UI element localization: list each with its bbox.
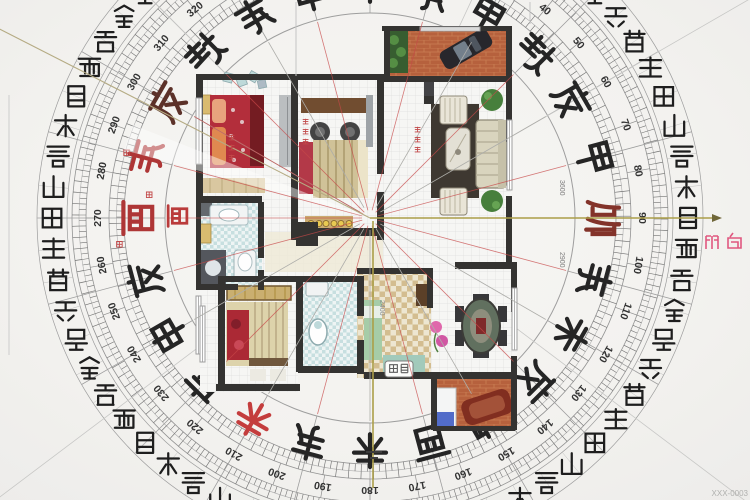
svg-text:XXX-0003: XXX-0003 [712, 489, 749, 498]
